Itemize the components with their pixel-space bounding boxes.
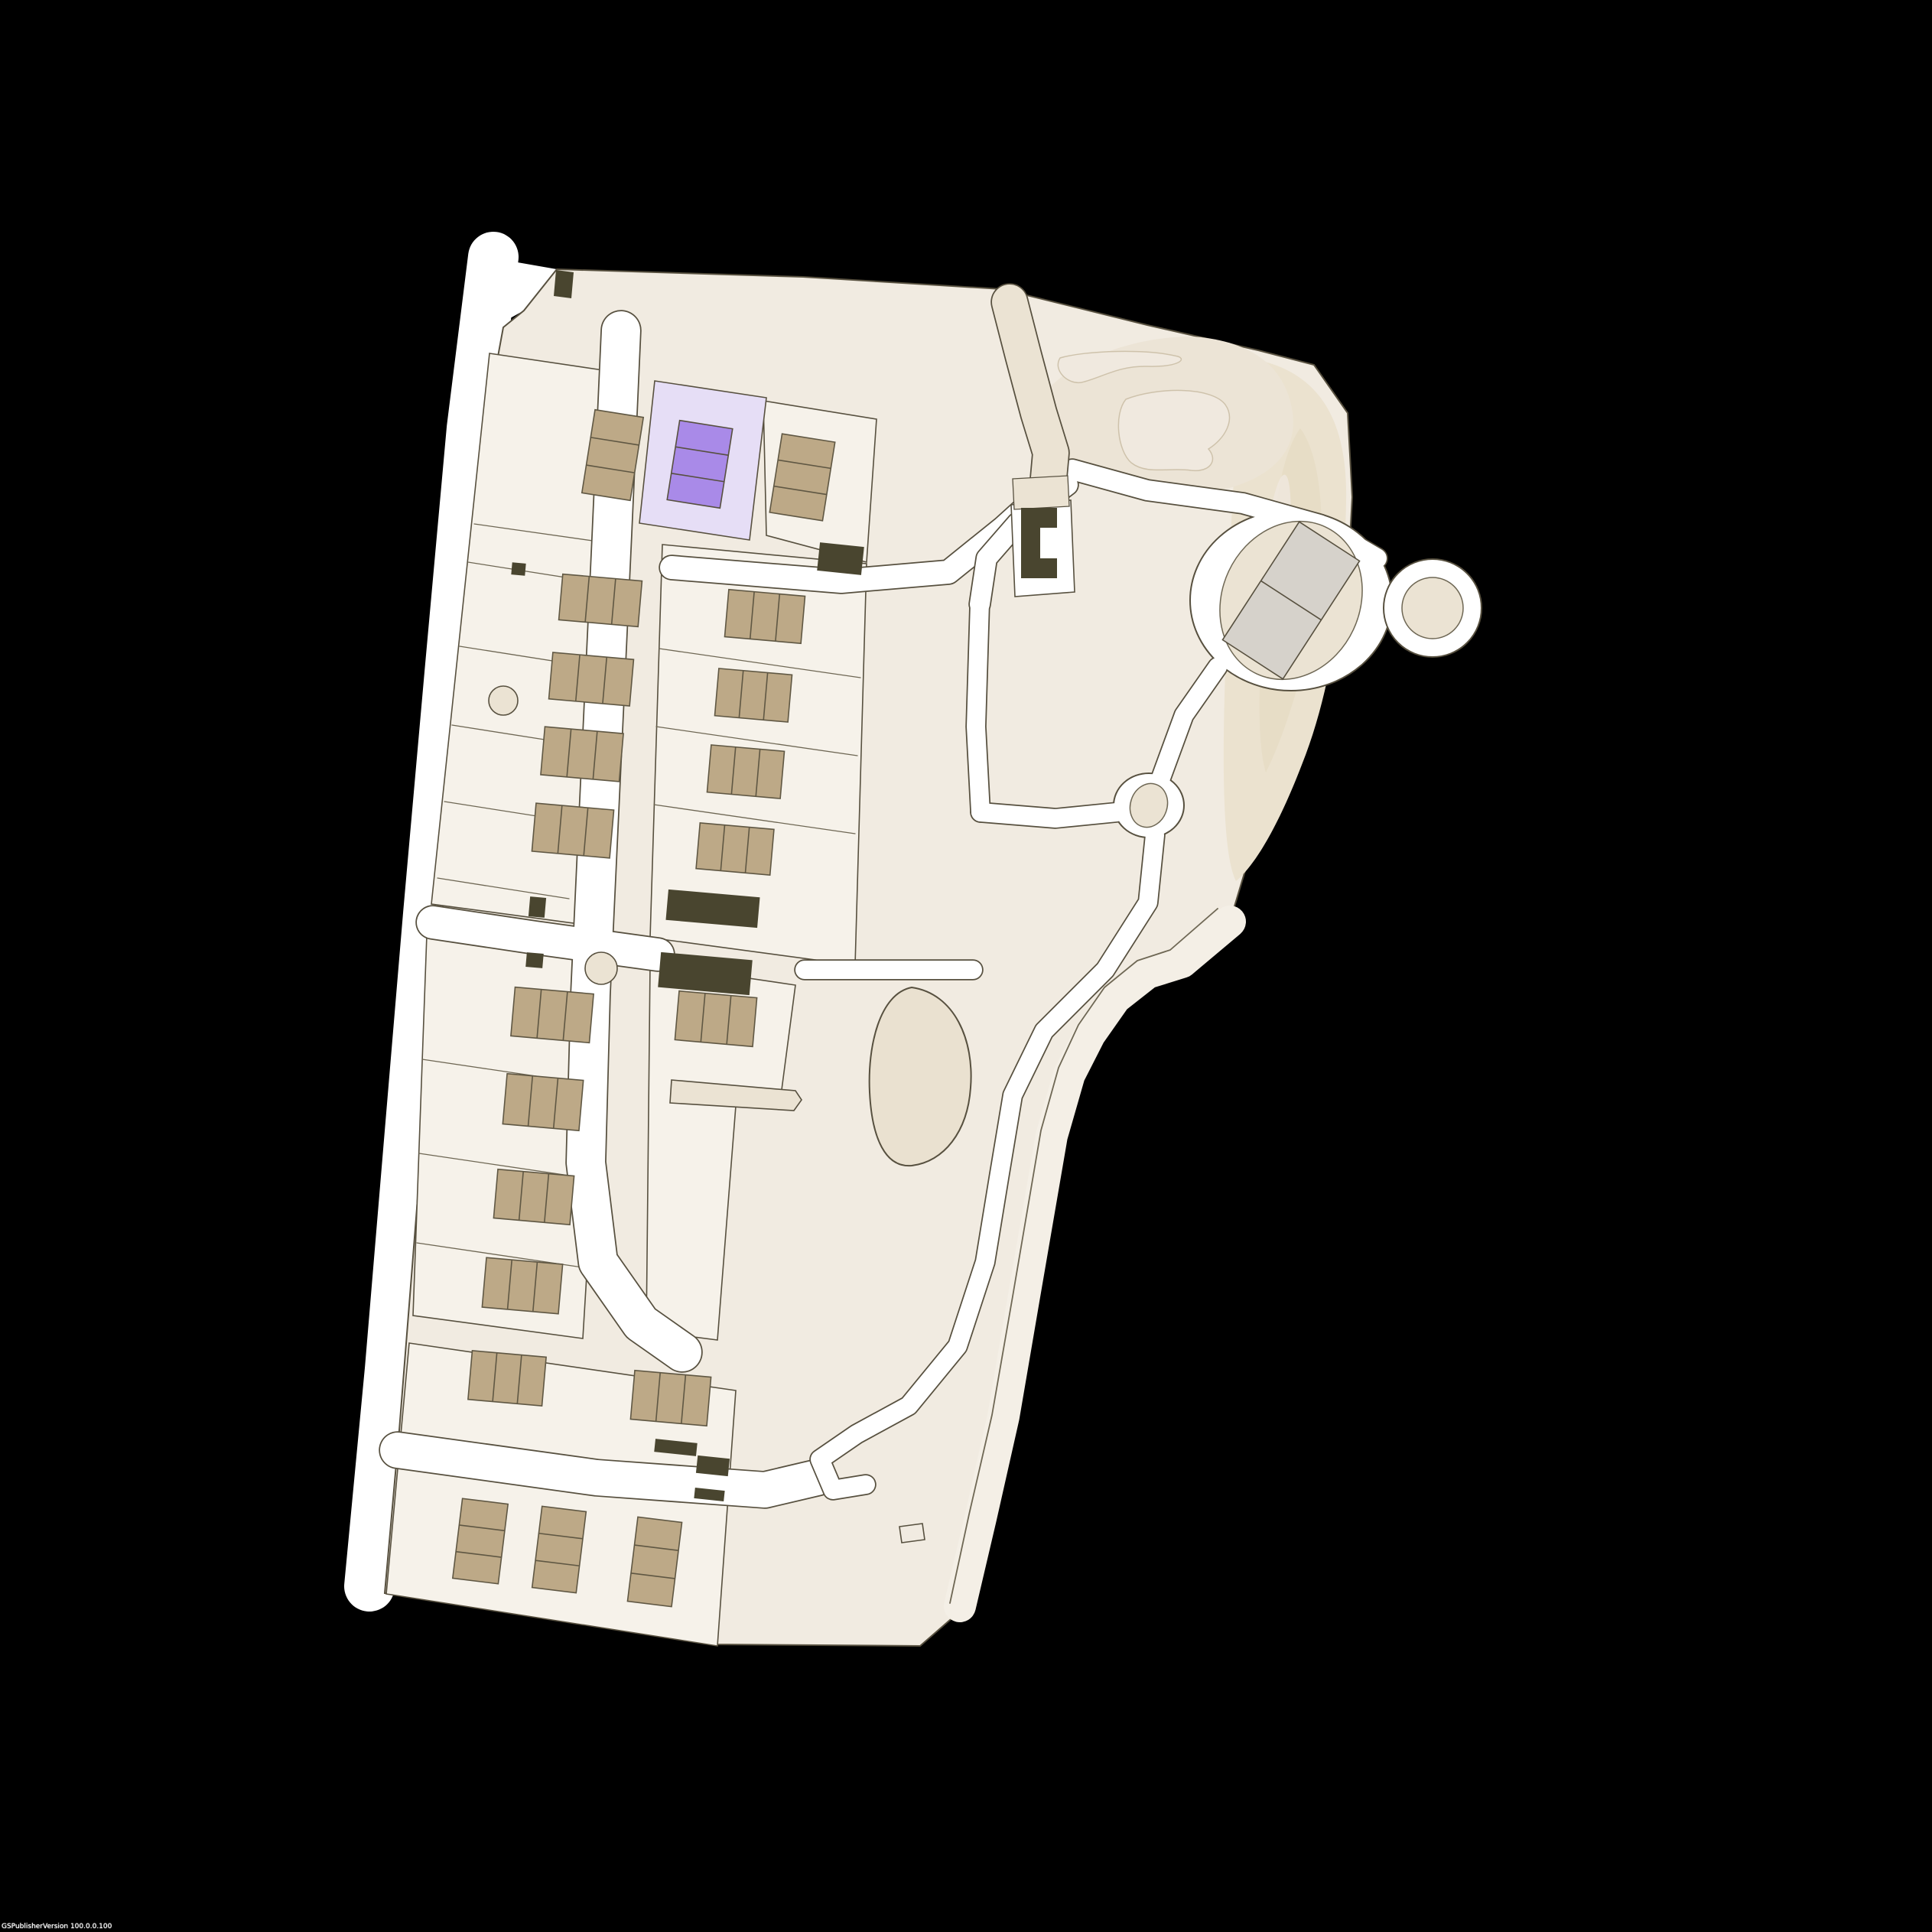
- house-building-outline: [769, 434, 834, 521]
- park-path: [976, 603, 981, 812]
- house-building-outline: [482, 1257, 562, 1313]
- house-building-outline: [541, 727, 623, 782]
- house-building-outline: [453, 1498, 508, 1584]
- house-building[interactable]: [769, 434, 834, 521]
- garage: [511, 562, 525, 576]
- culdesac-cap: [585, 952, 617, 984]
- house-building[interactable]: [696, 823, 774, 875]
- garage: [696, 1456, 730, 1476]
- house-building-outline: [511, 987, 594, 1043]
- house-building[interactable]: [549, 652, 634, 706]
- house-building-outline: [503, 1074, 583, 1130]
- house-building-outline: [675, 991, 756, 1047]
- house-building-outline: [549, 652, 634, 706]
- house-building[interactable]: [714, 668, 792, 722]
- house-building[interactable]: [541, 727, 623, 782]
- house-building-outline: [630, 1371, 711, 1426]
- landscape-patch: [1118, 390, 1229, 470]
- site-plan-page: GSPublisherVersion 100.0.0.100: [0, 0, 1932, 1932]
- house-building[interactable]: [532, 803, 613, 858]
- entrance-marker: [554, 270, 574, 298]
- house-building-outline: [532, 803, 613, 858]
- house-building[interactable]: [627, 1517, 681, 1606]
- house-building-outline: [559, 574, 642, 627]
- watermark-text: GSPublisherVersion 100.0.0.100: [2, 1923, 112, 1930]
- house-building-outline: [468, 1351, 546, 1406]
- house-building-outline: [493, 1169, 574, 1225]
- site-plan-map: [0, 0, 1932, 1932]
- park-path: [981, 812, 1117, 818]
- garage: [817, 542, 864, 575]
- house-building[interactable]: [511, 987, 594, 1043]
- house-building[interactable]: [630, 1371, 711, 1426]
- house-building[interactable]: [707, 745, 784, 798]
- culdesac-cap: [489, 686, 518, 715]
- house-building-outline: [627, 1517, 681, 1606]
- house-building[interactable]: [493, 1169, 574, 1225]
- house-building-outline: [714, 668, 792, 722]
- house-building[interactable]: [559, 574, 642, 627]
- garage: [525, 952, 544, 968]
- house-building[interactable]: [482, 1257, 562, 1313]
- house-building-outline: [532, 1506, 587, 1592]
- house-building[interactable]: [503, 1074, 583, 1130]
- shed-marker: [899, 1524, 925, 1543]
- house-building-outline: [724, 590, 805, 643]
- house-building[interactable]: [532, 1506, 587, 1592]
- roundabout-island: [1402, 577, 1463, 639]
- house-building[interactable]: [468, 1351, 546, 1406]
- house-building-outline: [707, 745, 784, 798]
- house-building[interactable]: [724, 590, 805, 643]
- garage: [529, 896, 546, 918]
- house-building-outline: [696, 823, 774, 875]
- house-building[interactable]: [453, 1498, 508, 1584]
- plaza-apron: [1013, 476, 1069, 509]
- house-building[interactable]: [675, 991, 756, 1047]
